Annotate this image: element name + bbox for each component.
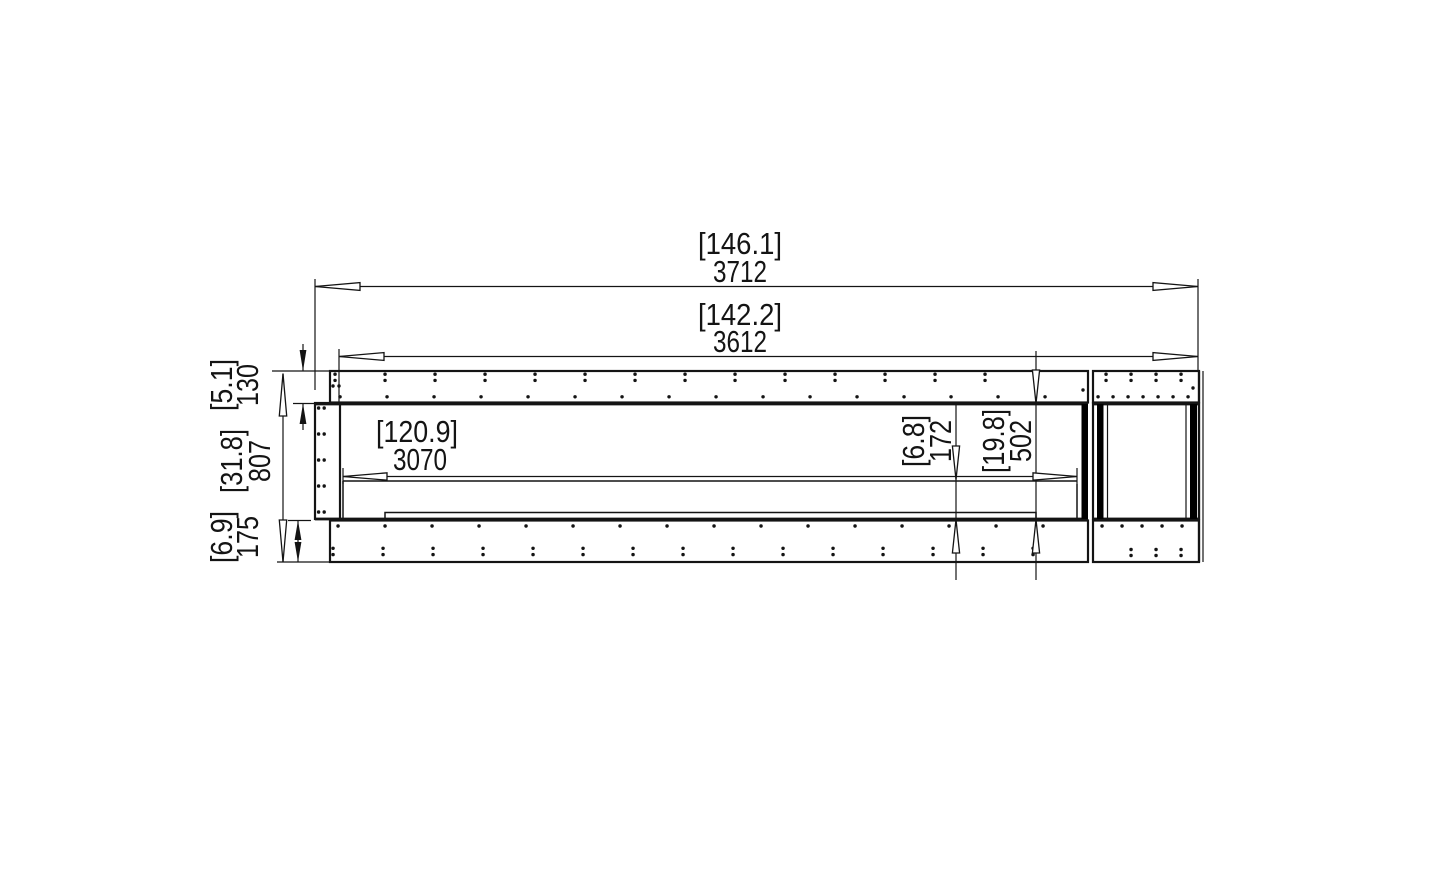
arrow-3070-left xyxy=(343,473,387,480)
label-overall-height-mm: 807 xyxy=(242,440,277,482)
arrow-3612-right xyxy=(1153,353,1198,361)
arrow-502-up xyxy=(1032,520,1039,554)
arrow-3070-right xyxy=(1033,473,1077,480)
arrow-3712-right xyxy=(1153,283,1198,291)
screw-hole-dots xyxy=(319,374,1193,555)
drawing-canvas: [146.1] 3712 [142.2] 3612 [120.9] 3070 [… xyxy=(0,0,1445,893)
bottom-flange-main xyxy=(330,521,1088,563)
label-ledge-height-mm: 172 xyxy=(923,420,958,462)
label-overall-width-mm: 3712 xyxy=(713,254,767,289)
arrow-175-down xyxy=(295,542,302,562)
top-flange-main xyxy=(330,371,1088,403)
label-opening-width-mm: 3070 xyxy=(393,442,447,477)
arrow-3712-left xyxy=(315,283,360,291)
arrow-130-up xyxy=(300,404,307,425)
arrow-175-up xyxy=(295,521,302,541)
glass-bar-main-right xyxy=(1082,404,1089,519)
arrow-130-down xyxy=(300,350,307,371)
arrow-807-up xyxy=(279,374,286,417)
top-flange-right xyxy=(1093,371,1199,403)
label-fascia-width-mm: 3612 xyxy=(713,324,767,359)
glass-bar-compartment-right xyxy=(1190,404,1197,519)
arrow-807-down xyxy=(279,520,286,562)
arrow-3612-left xyxy=(339,353,384,361)
label-top-flange-mm: 130 xyxy=(230,364,265,406)
label-opening-height-mm: 502 xyxy=(1003,420,1038,462)
arrow-502-down xyxy=(1032,370,1039,404)
technical-drawing: [146.1] 3712 [142.2] 3612 [120.9] 3070 [… xyxy=(0,0,1445,893)
firebox-body xyxy=(315,371,1203,562)
right-compartment xyxy=(1093,403,1199,519)
label-bottom-flange-mm: 175 xyxy=(230,516,265,558)
glass-bar-compartment-left xyxy=(1097,404,1104,519)
arrow-172-up xyxy=(952,520,959,554)
